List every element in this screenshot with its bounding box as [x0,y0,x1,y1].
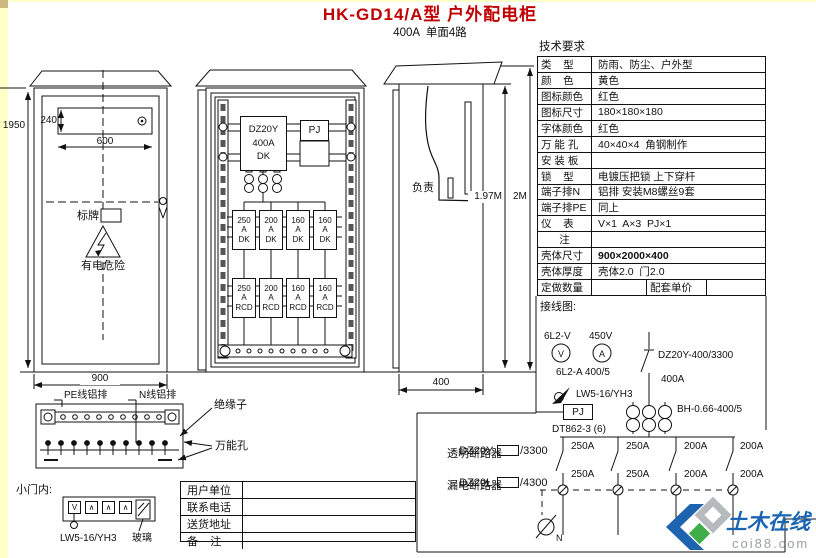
front-view-drawing [0,70,171,389]
voltmeter-square: V [68,501,81,514]
table-row: 用户单位 [181,482,415,499]
n-bar-label: N线铝排 [139,390,176,402]
tech-requirements-table: 类 型防雨、防尘、户外型 颜 色黄色 图标颜色红色 图标尺寸180×180×18… [537,56,766,296]
table-row: 字体颜色红色 [538,121,765,137]
dim-window-width-label: 600 [85,136,125,148]
glass-label: 玻璃 [132,533,152,545]
branch-breaker-dk: 160ADK [313,210,337,250]
pj-meter-box: PJ [300,120,329,141]
table-row: 端子排PE同上 [538,200,765,216]
tech-requirements-heading: 技术要求 [539,41,585,54]
watermark-name: 土木在线 [726,510,813,534]
drawing-sheet: HK-GD14/A型 户外配电柜 400A 单面4路 技术要求 类 型防雨、防尘… [0,0,816,558]
branch-rating-top: 250A [626,441,649,453]
table-row: 颜 色黄色 [538,73,765,89]
dim-inner-height-label: 1.97M [468,191,502,203]
pe-bar-label: PE线铝排 [64,390,107,402]
dim-window-height-label: 240 [32,115,57,127]
selector-switch-label: LW5-16/YH3 [60,533,117,545]
voltmeter-glyph: V [558,349,564,359]
ammeter-glyph: A [599,349,605,359]
table-row: 万 能 孔40×40×4 角钢制作 [538,137,765,153]
table-row: 注 [538,232,765,248]
branch-breaker-dk: 200ADK [259,210,283,250]
ammeter-model-label: 6L2-A 400/5 [556,367,610,379]
branch-breaker-dk: 160ADK [286,210,310,250]
branch-rating-bottom: 250A [571,469,594,481]
dim-outer-height-label: 2M [513,191,527,203]
load-label: 负责 [412,182,434,195]
branch-breaker-rcd: 250ARCD [232,278,256,318]
table-row: 图标颜色红色 [538,89,765,105]
main-breaker-model-label: DZ20Y-400/3300 [658,350,733,362]
branch-rating-top: 200A [740,441,763,453]
table-row: 壳体厚度壳体2.0 门2.0 [538,264,765,280]
insulator-label: 绝缘子 [214,399,247,412]
note-breaker-name-2: 漏电断路器 [447,480,502,493]
branch-breaker-rcd: 200ARCD [259,278,283,318]
page-subtitle: 400A 单面4路 [280,27,580,40]
dim-width-label: 900 [80,373,120,385]
branch-breaker-rcd: 160ARCD [286,278,310,318]
danger-label: 有电危险 [78,260,128,273]
branch-breaker-dk: 250ADK [232,210,256,250]
table-row: 图标尺寸180×180×180 [538,105,765,121]
ammeter-square: ∧ [102,501,115,514]
table-row-order: 定做数量 配套单价 [538,280,765,295]
door-detail-heading: 小门内: [16,484,52,497]
universal-holes-label: 万能孔 [215,440,248,453]
table-row: 联系电话 [181,499,415,516]
voltmeter-model-label: 6L2-V [544,331,571,343]
table-row: 仪 表V×1 A×3 PJ×1 [538,216,765,232]
ct-model-label: BH-0.66-400/5 [677,404,742,416]
branch-rating-bottom: 200A [684,469,707,481]
ammeter-square: ∧ [119,501,132,514]
selector-model-label: LW5-16/YH3 [576,389,633,401]
watermark-logo: 土木在线 coi88.com [650,496,816,558]
table-row: 备 注 [181,533,415,549]
branch-breaker-rcd: 160ARCD [313,278,337,318]
table-row: 安 装 板 [538,153,765,169]
neutral-label: N [556,533,563,543]
nameplate-label: 标牌 [66,210,99,223]
watermark-site: coi88.com [732,536,809,551]
dim-depth-label: 400 [421,377,461,389]
side-view-drawing [384,62,534,395]
main-breaker-box: DZ20Y 400A DK [240,116,287,171]
ammeter-square: ∧ [85,501,98,514]
branch-rating-bottom: 200A [740,469,763,481]
table-row: 类 型防雨、防尘、户外型 [538,57,765,73]
branch-rating-top: 200A [684,441,707,453]
voltage-label: 450V [589,331,612,343]
contact-table: 用户单位 联系电话 送货地址 备 注 [180,481,416,542]
energy-meter-model-label: DT862-3 (6) [552,424,606,436]
table-row: 送货地址 [181,516,415,533]
branch-rating-top: 250A [571,441,594,453]
main-rating-label: 400A [661,374,684,386]
table-row: 锁 型电镀压把锁 上下穿杆 [538,169,765,185]
branch-rating-bottom: 250A [626,469,649,481]
table-row: 壳体尺寸900×2000×400 [538,248,765,264]
note-breaker-name-1: 透明断路器 [447,448,502,461]
table-row: 端子排N铝排 安装M8螺丝9套 [538,185,765,201]
pj-symbol-box: PJ [563,404,593,420]
wiring-diagram-heading: 接线图: [540,301,576,314]
page-title: HK-GD14/A型 户外配电柜 [280,5,580,25]
dim-height-label: 1950 [2,120,26,132]
busbar-detail-drawing [36,400,212,468]
